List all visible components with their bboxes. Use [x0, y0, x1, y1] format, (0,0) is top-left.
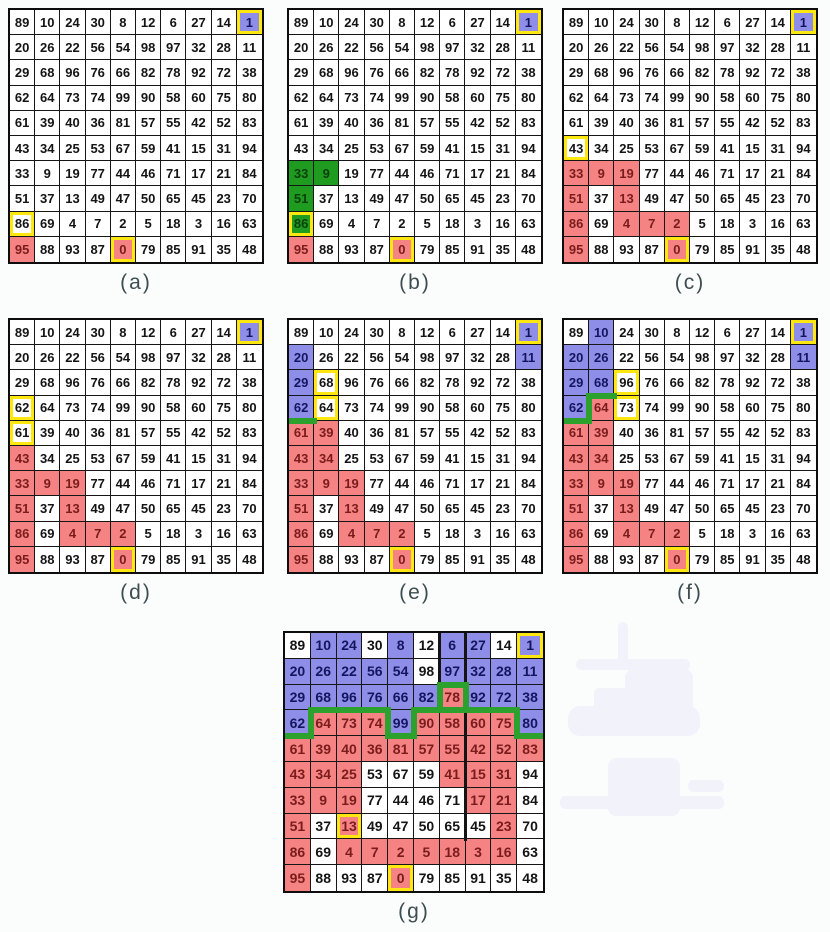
grid-cell: 80	[516, 86, 541, 111]
grid-cell: 46	[136, 161, 161, 186]
grid-cell: 0	[388, 865, 414, 891]
grid-cell: 14	[491, 320, 516, 345]
grid-cell: 14	[766, 10, 791, 35]
grid-cell: 40	[60, 111, 85, 136]
grid-cell: 18	[715, 212, 740, 237]
grid-cell: 18	[440, 212, 465, 237]
grid-cell: 63	[237, 522, 262, 547]
grid-cell: 97	[440, 35, 465, 60]
grid-cell: 77	[640, 471, 665, 496]
grid-cell: 37	[35, 496, 60, 521]
grid-cell: 71	[161, 161, 186, 186]
grid-cell: 31	[491, 446, 516, 471]
grid-cell: 39	[314, 111, 339, 136]
grid-cell: 69	[314, 212, 339, 237]
grid-cell: 49	[362, 814, 388, 840]
grid-cell: 48	[791, 547, 816, 572]
grid-cell: 38	[791, 60, 816, 85]
grid-cell: 15	[186, 136, 211, 161]
grid-cell: 84	[516, 471, 541, 496]
grid-cell: 98	[690, 35, 715, 60]
grid-cell: 32	[465, 345, 490, 370]
grid-cell: 27	[740, 10, 765, 35]
grid-cell: 46	[415, 161, 440, 186]
grid-cell: 71	[440, 471, 465, 496]
grid-cell: 58	[161, 86, 186, 111]
grid-cell: 2	[665, 522, 690, 547]
grid-cell: 89	[285, 633, 311, 659]
grid-cell: 10	[589, 10, 614, 35]
grid-cell: 76	[640, 60, 665, 85]
grid-cell: 51	[10, 496, 35, 521]
grid-cell: 20	[10, 345, 35, 370]
grid-cell: 22	[339, 345, 364, 370]
grid-cell: 5	[415, 522, 440, 547]
panel-g: 8910243081262714120262256549897322811296…	[283, 631, 545, 924]
grid-cell: 26	[314, 35, 339, 60]
grid-cell: 26	[589, 345, 614, 370]
panel-label-d: (d)	[8, 581, 264, 605]
grid-cell: 90	[136, 396, 161, 421]
grid-cell: 11	[237, 35, 262, 60]
grid-cell: 52	[491, 111, 516, 136]
grid-cell: 0	[390, 547, 415, 572]
grid-a: 8910243081262714120262256549897322811296…	[8, 8, 264, 264]
grid-cell: 91	[740, 237, 765, 262]
grid-cell: 73	[60, 86, 85, 111]
grid-cell: 64	[314, 86, 339, 111]
grid-cell: 61	[289, 421, 314, 446]
grid-cell: 7	[365, 212, 390, 237]
grid-cell: 19	[60, 471, 85, 496]
grid-cell: 79	[690, 237, 715, 262]
grid-cell: 60	[465, 86, 490, 111]
grid-cell: 7	[86, 522, 111, 547]
grid-cell: 56	[640, 35, 665, 60]
grid-cell: 4	[339, 522, 364, 547]
grid-cell: 8	[390, 10, 415, 35]
grid-cell: 66	[665, 370, 690, 395]
grid-cell: 9	[311, 788, 337, 814]
grid-cell: 6	[161, 10, 186, 35]
grid-cell: 26	[35, 35, 60, 60]
grid-cell: 94	[516, 446, 541, 471]
grid-cell: 70	[517, 814, 543, 840]
grid-cell: 56	[86, 35, 111, 60]
grid-cell: 51	[289, 496, 314, 521]
grid-cell: 32	[466, 659, 492, 685]
grid-cell: 41	[715, 446, 740, 471]
grid-cell: 21	[491, 788, 517, 814]
grid-cell: 93	[614, 547, 639, 572]
grid-cell: 36	[640, 111, 665, 136]
grid-cell: 58	[715, 86, 740, 111]
grid-cell: 20	[289, 35, 314, 60]
grid-cell: 42	[465, 111, 490, 136]
grid-cell: 70	[791, 496, 816, 521]
grid-cell: 2	[388, 839, 414, 865]
grid-cell: 36	[86, 111, 111, 136]
grid-cell: 22	[60, 35, 85, 60]
grid-cell: 50	[690, 496, 715, 521]
grid-cell: 48	[237, 547, 262, 572]
grid-cell: 63	[516, 212, 541, 237]
grid-g: 8910243081262714120262256549897322811296…	[283, 631, 545, 893]
grid-cell: 21	[766, 161, 791, 186]
grid-cell: 37	[314, 186, 339, 211]
grid-cell: 31	[766, 136, 791, 161]
grid-cell: 6	[440, 320, 465, 345]
grid-cell: 29	[10, 60, 35, 85]
grid-cell: 98	[690, 345, 715, 370]
grid-b: 8910243081262714120262256549897322811296…	[287, 8, 543, 264]
grid-cell: 59	[690, 136, 715, 161]
grid-cell: 4	[614, 212, 639, 237]
grid-cell: 21	[491, 471, 516, 496]
grid-cell: 3	[465, 212, 490, 237]
grid-cell: 45	[186, 496, 211, 521]
grid-cell: 24	[60, 320, 85, 345]
grid-cell: 69	[35, 212, 60, 237]
grid-cell: 31	[212, 446, 237, 471]
grid-cell: 17	[740, 161, 765, 186]
grid-cell: 47	[390, 496, 415, 521]
grid-cell: 15	[466, 762, 492, 788]
grid-cell: 65	[440, 186, 465, 211]
grid-cell: 28	[212, 35, 237, 60]
grid-cell: 16	[491, 212, 516, 237]
grid-cell: 97	[161, 35, 186, 60]
grid-cell: 54	[390, 35, 415, 60]
grid-cell: 93	[339, 547, 364, 572]
grid-cell: 6	[715, 10, 740, 35]
grid-cell: 66	[111, 60, 136, 85]
grid-cell: 55	[440, 736, 466, 762]
grid-cell: 86	[564, 522, 589, 547]
grid-cell: 14	[212, 10, 237, 35]
grid-cell: 69	[311, 839, 337, 865]
grid-cell: 77	[86, 471, 111, 496]
grid-cell: 42	[186, 111, 211, 136]
grid-cell: 93	[60, 547, 85, 572]
grid-cell: 93	[339, 237, 364, 262]
grid-cell: 12	[414, 633, 440, 659]
grid-cell: 64	[589, 396, 614, 421]
grid-cell: 15	[740, 136, 765, 161]
grid-cell: 84	[237, 161, 262, 186]
grid-cell: 48	[516, 237, 541, 262]
grid-cell: 64	[311, 710, 337, 736]
grid-cell: 82	[415, 60, 440, 85]
grid-cell: 2	[111, 212, 136, 237]
grid-cell: 5	[690, 522, 715, 547]
grid-cell: 33	[289, 471, 314, 496]
grid-d: 8910243081262714120262256549897322811296…	[8, 318, 264, 574]
grid-cell: 54	[390, 345, 415, 370]
grid-cell: 5	[690, 212, 715, 237]
grid-cell: 46	[415, 471, 440, 496]
grid-cell: 54	[111, 35, 136, 60]
grid-cell: 11	[237, 345, 262, 370]
grid-cell: 83	[791, 421, 816, 446]
grid-cell: 99	[665, 396, 690, 421]
grid-cell: 12	[415, 10, 440, 35]
grid-cell: 40	[337, 736, 363, 762]
grid-cell: 14	[491, 633, 517, 659]
grid-cell: 83	[517, 736, 543, 762]
grid-cell: 92	[465, 60, 490, 85]
grid-cell: 74	[365, 396, 390, 421]
grid-cell: 92	[740, 370, 765, 395]
grid-cell: 45	[186, 186, 211, 211]
grid-cell: 13	[339, 496, 364, 521]
grid-cell: 50	[415, 496, 440, 521]
grid-cell: 62	[10, 86, 35, 111]
grid-cell: 7	[640, 522, 665, 547]
grid-cell: 83	[516, 421, 541, 446]
grid-cell: 65	[440, 496, 465, 521]
grid-cell: 33	[285, 788, 311, 814]
grid-cell: 46	[136, 471, 161, 496]
grid-cell: 90	[415, 396, 440, 421]
grid-cell: 76	[365, 370, 390, 395]
grid-cell: 48	[517, 865, 543, 891]
grid-cell: 12	[690, 320, 715, 345]
grid-cell: 53	[365, 446, 390, 471]
grid-cell: 91	[465, 237, 490, 262]
grid-cell: 49	[86, 496, 111, 521]
grid-cell: 8	[111, 320, 136, 345]
grid-cell: 81	[390, 421, 415, 446]
grid-cell: 43	[285, 762, 311, 788]
grid-cell: 34	[589, 446, 614, 471]
grid-cell: 9	[314, 471, 339, 496]
grid-cell: 71	[161, 471, 186, 496]
grid-cell: 61	[564, 111, 589, 136]
grid-cell: 32	[740, 35, 765, 60]
grid-cell: 43	[289, 446, 314, 471]
grid-cell: 87	[86, 237, 111, 262]
grid-cell: 96	[614, 370, 639, 395]
panel-label-c: (c)	[562, 271, 818, 295]
grid-cell: 89	[289, 320, 314, 345]
grid-cell: 2	[390, 212, 415, 237]
grid-cell: 21	[212, 161, 237, 186]
grid-cell: 49	[365, 496, 390, 521]
grid-cell: 98	[136, 35, 161, 60]
grid-cell: 73	[339, 396, 364, 421]
grid-cell: 3	[740, 212, 765, 237]
grid-cell: 73	[60, 396, 85, 421]
grid-cell: 70	[516, 186, 541, 211]
grid-cell: 12	[136, 10, 161, 35]
grid-cell: 90	[415, 86, 440, 111]
grid-cell: 78	[440, 60, 465, 85]
grid-cell: 15	[186, 446, 211, 471]
grid-cell: 95	[289, 237, 314, 262]
grid-cell: 17	[740, 471, 765, 496]
grid-cell: 35	[491, 237, 516, 262]
grid-cell: 90	[136, 86, 161, 111]
grid-cell: 92	[465, 370, 490, 395]
grid-cell: 8	[390, 320, 415, 345]
watershed-line	[287, 418, 317, 424]
grid-cell: 99	[390, 396, 415, 421]
grid-cell: 17	[186, 161, 211, 186]
grid-cell: 8	[388, 633, 414, 659]
grid-cell: 71	[440, 161, 465, 186]
grid-cell: 89	[289, 10, 314, 35]
grid-cell: 30	[365, 10, 390, 35]
grid-cell: 58	[440, 396, 465, 421]
grid-cell: 85	[161, 547, 186, 572]
grid-cell: 2	[665, 212, 690, 237]
grid-cell: 12	[415, 320, 440, 345]
grid-cell: 9	[35, 471, 60, 496]
panel-label-f: (f)	[562, 581, 818, 605]
grid-cell: 25	[60, 136, 85, 161]
grid-cell: 59	[415, 446, 440, 471]
grid-cell: 67	[111, 136, 136, 161]
grid-cell: 93	[614, 237, 639, 262]
grid-cell: 23	[766, 496, 791, 521]
grid-cell: 6	[440, 633, 466, 659]
grid-cell: 75	[491, 396, 516, 421]
grid-cell: 34	[35, 446, 60, 471]
grid-cell: 18	[715, 522, 740, 547]
grid-cell: 35	[491, 547, 516, 572]
grid-cell: 51	[10, 186, 35, 211]
grid-cell: 93	[337, 865, 363, 891]
grid-cell: 34	[35, 136, 60, 161]
grid-cell: 27	[186, 320, 211, 345]
grid-cell: 72	[766, 370, 791, 395]
watershed-line	[586, 393, 617, 399]
grid-cell: 29	[289, 370, 314, 395]
grid-cell: 82	[415, 370, 440, 395]
grid-cell: 85	[161, 237, 186, 262]
grid-cell: 25	[337, 762, 363, 788]
grid-cell: 45	[740, 496, 765, 521]
grid-cell: 56	[86, 345, 111, 370]
grid-cell: 65	[715, 186, 740, 211]
grid-cell: 37	[314, 496, 339, 521]
grid-cell: 33	[289, 161, 314, 186]
grid-cell: 0	[111, 237, 136, 262]
grid-cell: 26	[314, 345, 339, 370]
grid-cell: 30	[640, 320, 665, 345]
grid-cell: 83	[516, 111, 541, 136]
panel-label-g: (g)	[283, 900, 545, 924]
grid-cell: 67	[388, 762, 414, 788]
grid-cell: 54	[388, 659, 414, 685]
grid-cell: 8	[665, 320, 690, 345]
grid-cell: 26	[35, 345, 60, 370]
grid-cell: 79	[415, 547, 440, 572]
grid-cell: 74	[86, 396, 111, 421]
grid-cell: 31	[212, 136, 237, 161]
grid-cell: 17	[466, 788, 492, 814]
grid-cell: 69	[589, 522, 614, 547]
grid-cell: 73	[339, 86, 364, 111]
grid-cell: 81	[665, 111, 690, 136]
grid-cell: 79	[136, 547, 161, 572]
grid-cell: 56	[640, 345, 665, 370]
grid-cell: 90	[414, 710, 440, 736]
grid-cell: 68	[35, 370, 60, 395]
grid-cell: 65	[161, 186, 186, 211]
grid-cell: 16	[212, 522, 237, 547]
grid-cell: 9	[314, 161, 339, 186]
grid-cell: 91	[186, 547, 211, 572]
grid-cell: 3	[466, 839, 492, 865]
grid-cell: 46	[414, 788, 440, 814]
grid-cell: 29	[10, 370, 35, 395]
grid-cell: 4	[614, 522, 639, 547]
grid-cell: 67	[665, 446, 690, 471]
grid-cell: 63	[516, 522, 541, 547]
grid-cell: 88	[314, 237, 339, 262]
grid-cell: 52	[766, 111, 791, 136]
grid-cell: 86	[564, 212, 589, 237]
grid-cell: 90	[690, 396, 715, 421]
grid-cell: 63	[517, 839, 543, 865]
grid-cell: 36	[362, 736, 388, 762]
grid-cell: 14	[491, 10, 516, 35]
grid-cell: 16	[491, 839, 517, 865]
grid-cell: 84	[237, 471, 262, 496]
grid-cell: 5	[414, 839, 440, 865]
grid-cell: 51	[285, 814, 311, 840]
grid-cell: 83	[237, 111, 262, 136]
grid-cell: 17	[186, 471, 211, 496]
grid-cell: 57	[690, 421, 715, 446]
panel-c: 8910243081262714120262256549897322811296…	[562, 8, 818, 295]
grid-cell: 43	[564, 446, 589, 471]
grid-cell: 10	[311, 633, 337, 659]
grid-cell: 20	[289, 345, 314, 370]
grid-cell: 42	[740, 421, 765, 446]
grid-cell: 6	[440, 10, 465, 35]
grid-cell: 46	[690, 161, 715, 186]
grid-cell: 21	[491, 161, 516, 186]
grid-cell: 61	[285, 736, 311, 762]
grid-cell: 88	[589, 547, 614, 572]
grid-cell: 60	[186, 86, 211, 111]
grid-cell: 54	[665, 35, 690, 60]
grid-cell: 71	[715, 161, 740, 186]
grid-cell: 31	[491, 136, 516, 161]
grid-cell: 42	[465, 421, 490, 446]
grid-cell: 45	[465, 496, 490, 521]
grid-cell: 48	[791, 237, 816, 262]
basin-boundary-line	[464, 761, 467, 790]
grid-cell: 23	[212, 186, 237, 211]
grid-cell: 36	[640, 421, 665, 446]
grid-cell: 19	[614, 161, 639, 186]
grid-cell: 56	[365, 345, 390, 370]
grid-cell: 79	[414, 865, 440, 891]
grid-cell: 82	[690, 60, 715, 85]
panel-e: 8910243081262714120262256549897322811296…	[287, 318, 543, 605]
grid-cell: 49	[365, 186, 390, 211]
grid-cell: 16	[766, 212, 791, 237]
grid-cell: 1	[791, 10, 816, 35]
grid-cell: 10	[35, 10, 60, 35]
grid-cell: 11	[516, 345, 541, 370]
grid-cell: 73	[614, 396, 639, 421]
grid-cell: 30	[86, 320, 111, 345]
